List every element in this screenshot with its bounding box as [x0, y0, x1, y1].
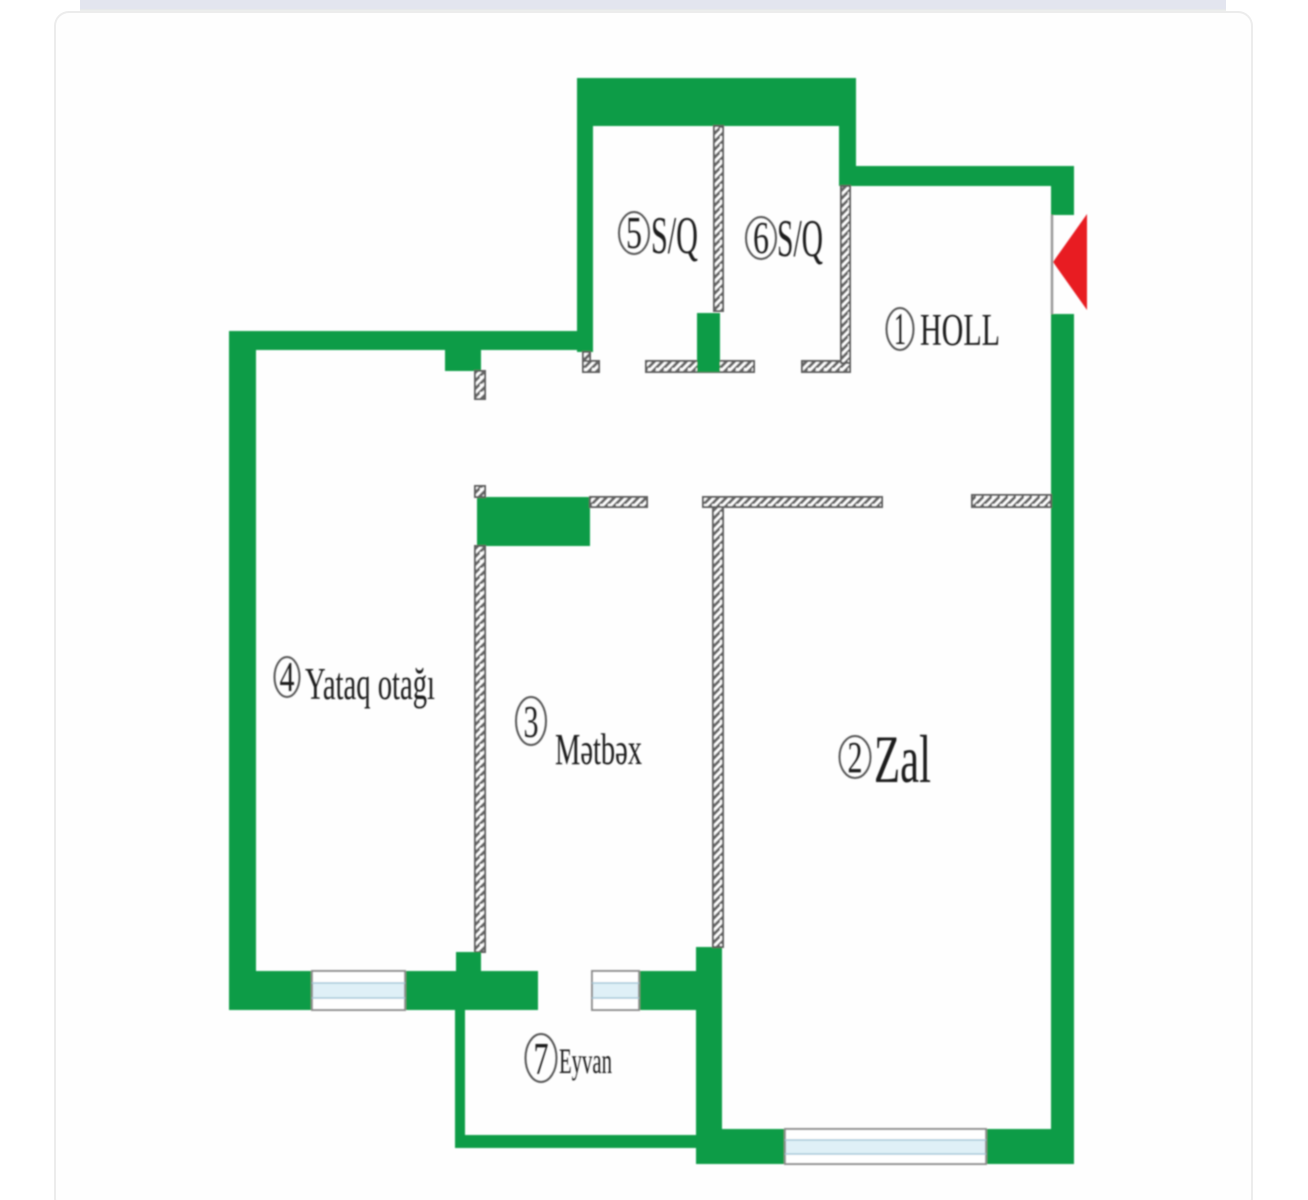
svg-text:1: 1 [894, 304, 906, 354]
svg-text:6: 6 [753, 213, 769, 263]
svg-text:Zal: Zal [874, 721, 931, 797]
svg-text:4: 4 [280, 655, 295, 701]
svg-text:7: 7 [534, 1033, 549, 1084]
svg-text:HOLL: HOLL [920, 305, 1000, 355]
svg-text:5: 5 [626, 208, 642, 258]
svg-text:2: 2 [848, 733, 863, 782]
svg-text:S/Q: S/Q [651, 207, 698, 265]
svg-text:Yataq otağı: Yataq otağı [305, 659, 435, 709]
svg-text:Eyvan: Eyvan [559, 1041, 612, 1081]
svg-text:Mətbəx: Mətbəx [555, 725, 642, 774]
svg-text:3: 3 [524, 696, 539, 747]
svg-text:S/Q: S/Q [777, 210, 823, 268]
